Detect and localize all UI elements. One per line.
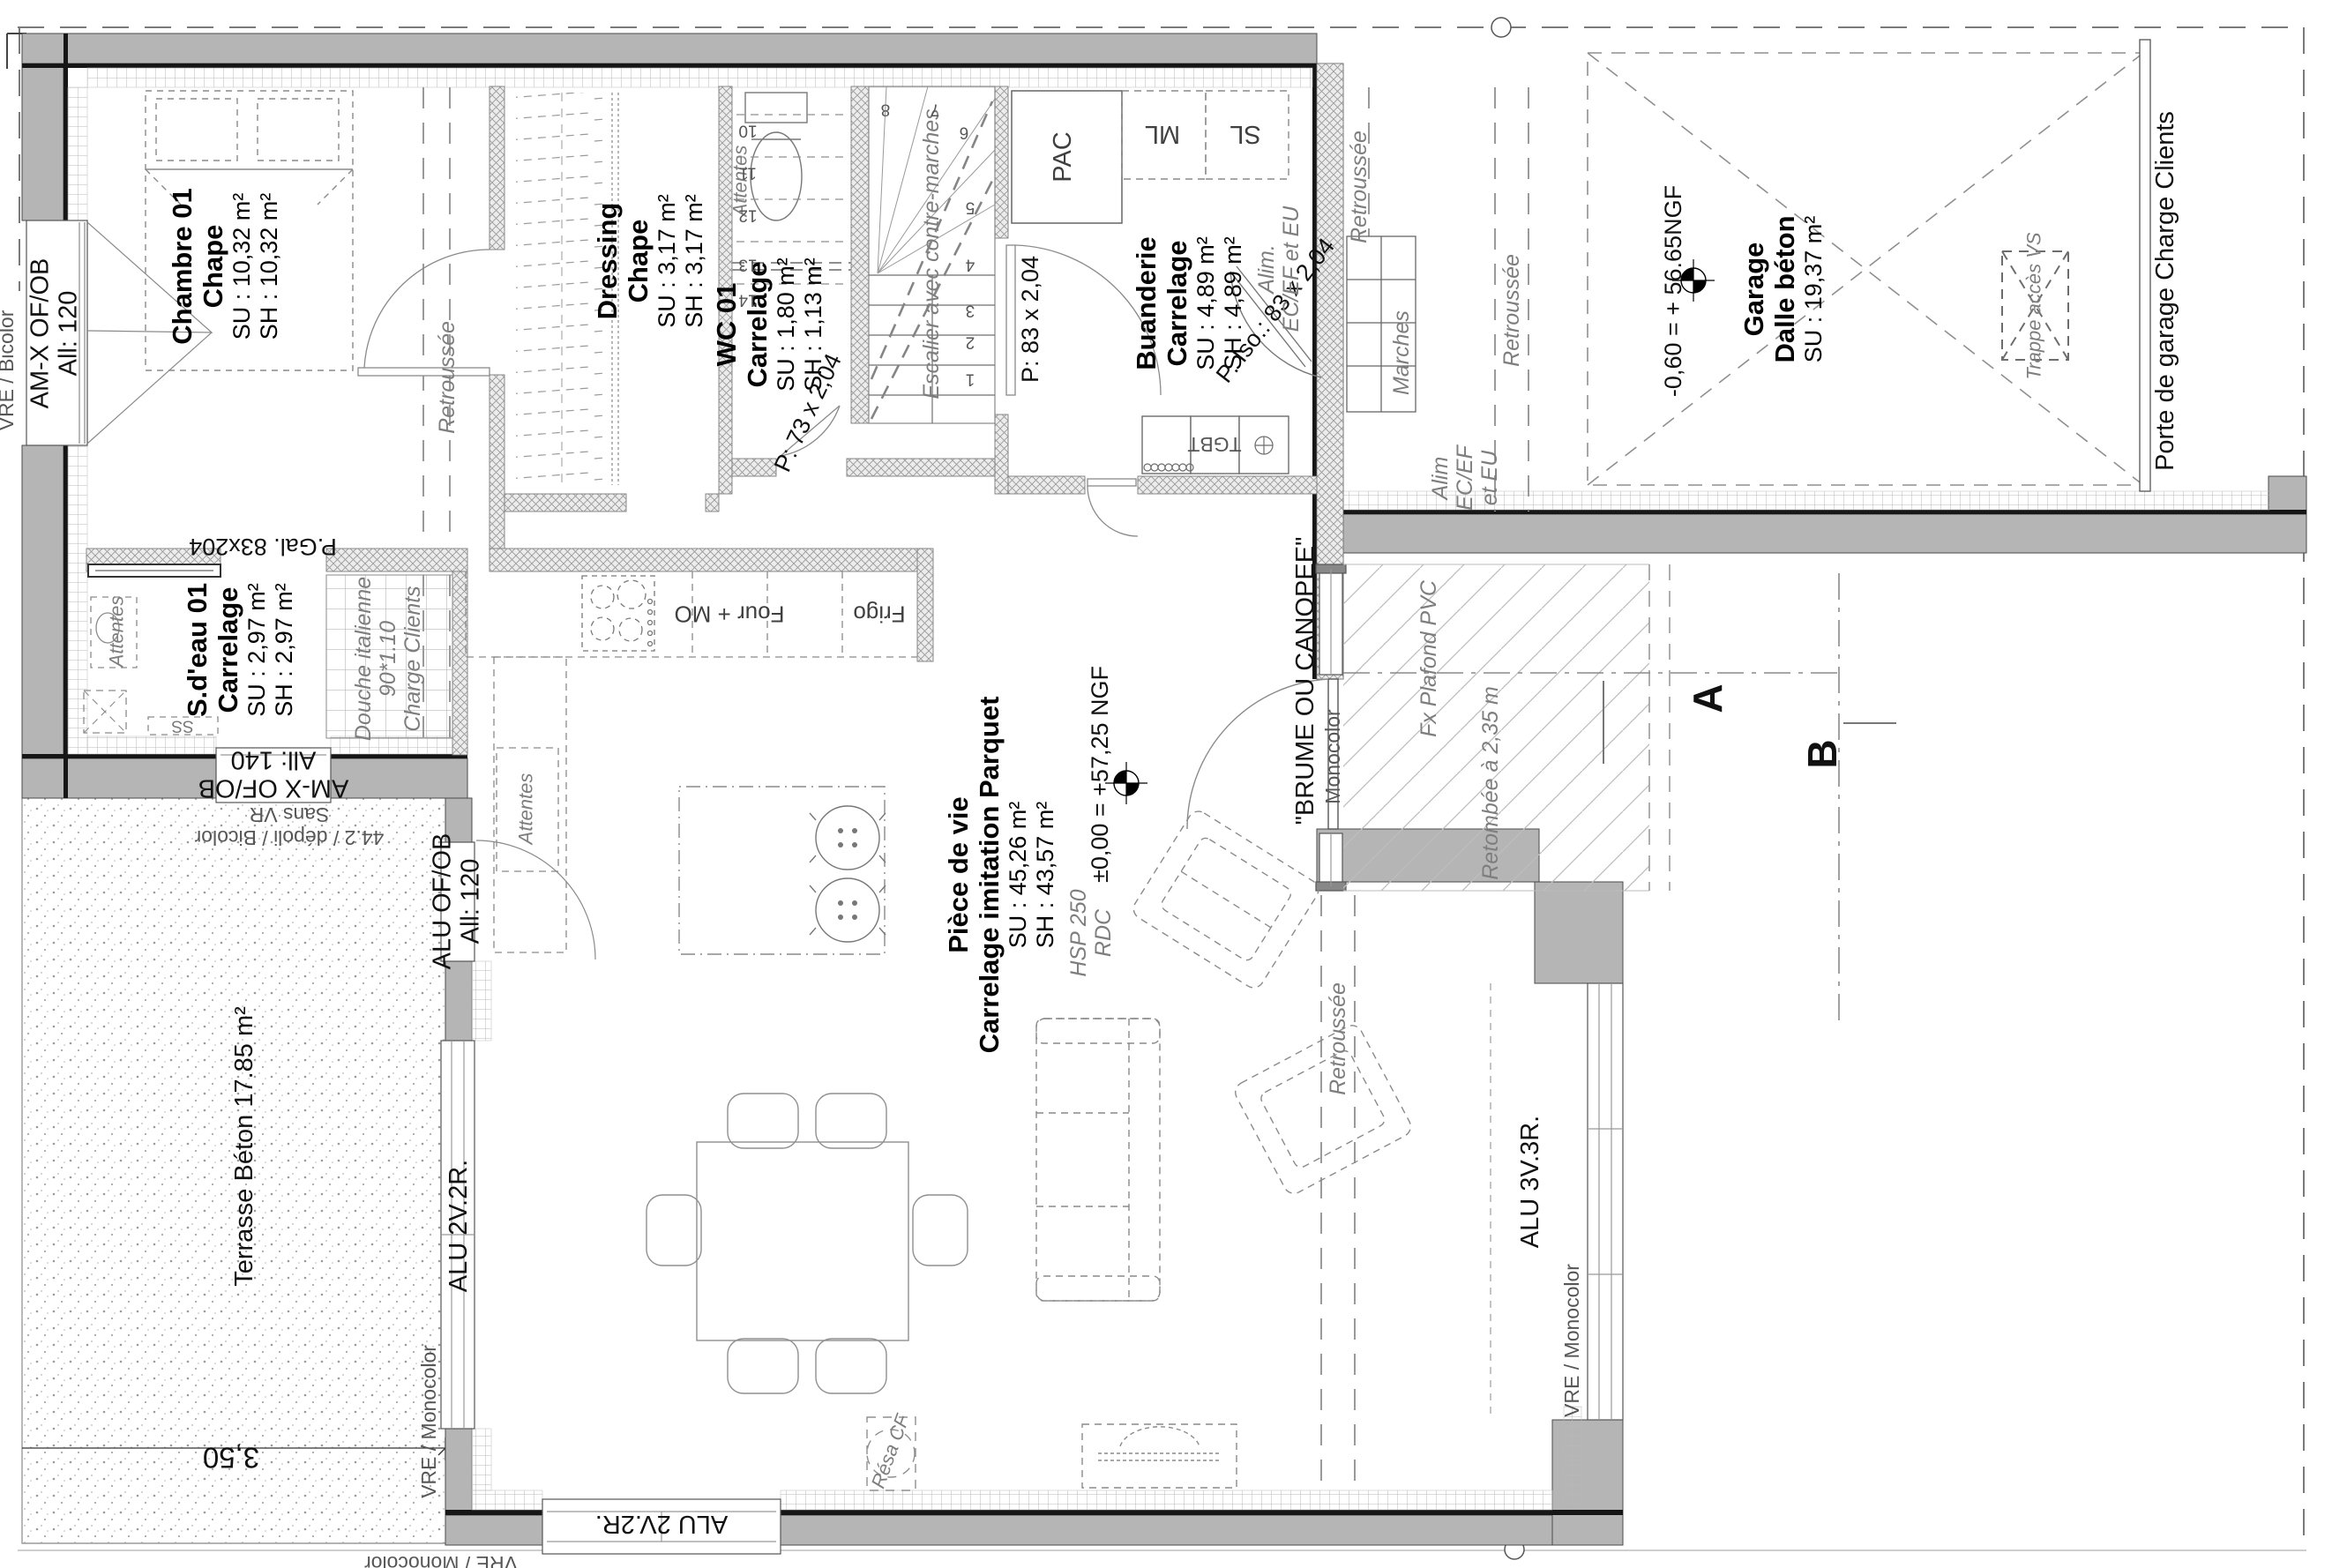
door-pgal-text: P.Gal. 83x204 (189, 534, 337, 560)
note-retombee-text: Retombée à 2,35 m (1478, 686, 1503, 880)
room-terrasse: Terrasse Béton 17.85 m² (230, 1006, 258, 1287)
room-chambre-01-subtext: SU : 10,32 m² (228, 188, 255, 344)
room-piece-de-vie-subtext: SH : 43,57 m² (1032, 697, 1058, 1054)
dim-3-50-text: 3,50 (203, 1441, 259, 1474)
glazing-spec-text: Sans VR (195, 803, 385, 825)
note-retroussee-2-text: Retroussée (1347, 131, 1372, 243)
room-chambre-01-text: Chambre 01 (168, 188, 198, 344)
room-chambre-01-text: Chape (198, 188, 229, 344)
stair-2: 2 (966, 332, 975, 351)
room-dressing-text: Chape (624, 194, 654, 328)
window-alu-2v2r-south: ALU 2V.2R. (595, 1510, 728, 1538)
room-piece-de-vie-text: Carrelage imitation Parquet (975, 697, 1005, 1054)
window-vre-bicolor: VRE / Bicolor (0, 310, 19, 431)
note-hsp-text: RDC (1091, 889, 1116, 976)
note-attentes-sdeau-text: Attentes (107, 596, 129, 668)
note-hsp: HSP 250RDC (1066, 889, 1116, 976)
section-b-text: B (1800, 739, 1846, 768)
room-dressing-subtext: SH : 3,17 m² (681, 194, 707, 328)
stair-11: 11 (739, 163, 757, 182)
note-retroussee-3: Retroussée (1499, 254, 1524, 367)
stair-11-text: 11 (739, 163, 757, 182)
level-rdc-text: ±0,00 = +57,25 NGF (1087, 666, 1113, 883)
window-alu-3v3r-text: ALU 3V.3R. (1516, 1116, 1544, 1248)
note-alim-2: AlimEC/EFet EU (1428, 445, 1502, 511)
note-alim-2-text: EC/EF (1453, 445, 1477, 511)
note-trappe-vs-text: Trappe accès VS (2024, 232, 2046, 379)
stair-10-text: 10 (738, 121, 757, 139)
room-buanderie-text: Buanderie (1132, 236, 1162, 370)
garage-door-label-text: Porte de garage Charge Clients (2151, 111, 2179, 471)
window-amx-140-text: All: 140 (198, 745, 349, 773)
note-douche-text: Charge Clients (400, 577, 425, 741)
equip-sl: SL (1230, 120, 1260, 148)
stair-7-text: 7 (931, 100, 940, 118)
room-terrasse-text: Terrasse Béton 17.85 m² (230, 1006, 258, 1287)
stair-4-text: 4 (966, 255, 975, 273)
room-dressing-text: Dressing (593, 194, 624, 328)
equip-pac: PAC (1049, 131, 1077, 182)
note-resa-cf: Résa CF (868, 1412, 915, 1491)
note-attentes-cuisine-text: Attentes (516, 773, 538, 845)
stair-14: 14 (738, 290, 757, 309)
equip-tgbt-text: TGBT (1187, 432, 1241, 455)
section-a-text: A (1685, 683, 1731, 713)
door-p83-text: P: 83 x 2,04 (1017, 256, 1043, 383)
floor-plan: Chambre 01ChapeSU : 10,32 m²SH : 10,32 m… (0, 0, 2332, 1568)
room-garage-subtext: SU : 19,37 m² (1801, 215, 1827, 362)
note-hsp-text: HSP 250 (1066, 889, 1091, 976)
window-alu-2v2r-west-text: ALU 2V.2R. (445, 1160, 473, 1292)
plan-labels: Chambre 01ChapeSU : 10,32 m²SH : 10,32 m… (0, 0, 2332, 1568)
room-chambre-01-subtext: SH : 10,32 m² (256, 188, 282, 344)
room-piece-de-vie: Pièce de vieCarrelage imitation ParquetS… (944, 697, 1058, 1054)
door-pgal: P.Gal. 83x204 (189, 534, 337, 560)
equip-four-mo: Four + MO (675, 601, 785, 626)
note-monocolor: Monocolor (1322, 709, 1345, 803)
window-alu-ofob-120-text: All: 120 (457, 833, 485, 970)
equip-ml-text: ML (1145, 120, 1180, 148)
equip-ml: ML (1145, 120, 1180, 148)
note-attentes-cuisine: Attentes (516, 773, 538, 845)
stair-8-text: 8 (881, 100, 891, 118)
window-alu-ofob-120-text: ALU OF/OB (429, 833, 457, 970)
door-p83: P: 83 x 2,04 (1017, 256, 1043, 383)
note-retroussee-4: Retroussée (1326, 982, 1350, 1095)
room-buanderie-text: Carrelage (1162, 236, 1193, 370)
room-garage: GarageDalle bétonSU : 19,37 m² (1739, 215, 1827, 362)
note-douche: Douche italienne90*1.10Charge Clients (351, 577, 425, 741)
glazing-spec: 44.2 / dépoli / BicolorSans VR (195, 803, 385, 848)
equip-sl-text: SL (1230, 120, 1260, 148)
level-garage: -0,60 = + 56.65NGF (1660, 185, 1686, 397)
note-retroussee-1: Retroussée (435, 321, 460, 434)
window-amx-120-text: AM-X OF/OB (26, 258, 55, 409)
room-wc-01-text: Carrelage (743, 258, 774, 392)
window-vre-monocolor-east: VRE / Monocolor (1561, 1264, 1584, 1417)
room-dressing-subtext: SU : 3,17 m² (654, 194, 680, 328)
note-marches-text: Marches (1389, 310, 1414, 395)
note-brume-canopee-text: "BRUME OU CANOPEE" (1291, 537, 1319, 825)
stair-8: 8 (881, 100, 891, 118)
stair-4: 4 (966, 255, 975, 273)
note-douche-text: 90*1.10 (376, 577, 400, 741)
note-escalier-text: Escalier avec contre-marches (919, 108, 944, 399)
room-piece-de-vie-subtext: SU : 45,26 m² (1005, 697, 1031, 1054)
note-alim-1-text: Alim. (1254, 206, 1279, 332)
window-amx-140-text: AM-X OF/OB (198, 773, 349, 802)
window-alu-ofob-120: ALU OF/OBAll: 120 (429, 833, 486, 970)
note-retroussee-2: Retroussée (1347, 131, 1372, 243)
window-vre-monocolor-south-text: VRE / Monocolor (364, 1551, 518, 1568)
stair-12-text: 12 (738, 205, 757, 224)
section-b: B (1800, 739, 1846, 768)
window-alu-3v3r: ALU 3V.3R. (1516, 1116, 1544, 1248)
room-garage-text: Garage (1739, 215, 1770, 362)
note-trappe-vs: Trappe accès VS (2024, 232, 2046, 379)
note-alim-2-text: et EU (1477, 445, 1502, 511)
stair-3-text: 3 (966, 301, 975, 319)
note-retroussee-1-text: Retroussée (435, 321, 460, 434)
stair-6-text: 6 (960, 123, 969, 141)
stair-10: 10 (738, 121, 757, 139)
note-brume-canopee: "BRUME OU CANOPEE" (1291, 537, 1319, 825)
window-vre-monocolor-west: VRE / Monocolor (418, 1345, 441, 1498)
room-wc-01-subtext: SU : 1,80 m² (773, 258, 799, 392)
window-vre-monocolor-east-text: VRE / Monocolor (1561, 1264, 1584, 1417)
note-alim-1: Alim.EC/EF et EU (1254, 206, 1304, 332)
stair-2-text: 2 (966, 332, 975, 351)
note-monocolor-text: Monocolor (1322, 709, 1345, 803)
section-a: A (1685, 683, 1731, 713)
equip-pac-text: PAC (1049, 131, 1077, 182)
note-attentes-sdeau: Attentes (107, 596, 129, 668)
note-fx-plafond: Fx Plafond PVC (1416, 580, 1441, 737)
glazing-spec-text: 44.2 / dépoli / Bicolor (195, 825, 385, 848)
stair-3: 3 (966, 301, 975, 319)
room-dressing: DressingChapeSU : 3,17 m²SH : 3,17 m² (593, 194, 707, 328)
stair-5-text: 5 (966, 198, 975, 216)
note-retroussee-4-text: Retroussée (1326, 982, 1350, 1095)
garage-door-label: Porte de garage Charge Clients (2151, 111, 2179, 471)
note-ss: SS (171, 716, 193, 735)
window-alu-2v2r-south-text: ALU 2V.2R. (595, 1510, 728, 1538)
stair-7: 7 (931, 100, 940, 118)
level-rdc: ±0,00 = +57,25 NGF (1087, 666, 1113, 883)
note-fx-plafond-text: Fx Plafond PVC (1416, 580, 1441, 737)
window-amx-120: AM-X OF/OBAll: 120 (26, 258, 84, 409)
room-wc-01: WC 01CarrelageSU : 1,80 m²SH : 1,13 m² (712, 258, 826, 392)
window-vre-bicolor-text: VRE / Bicolor (0, 310, 19, 431)
stair-12: 12 (738, 205, 757, 224)
room-sdeau-01-subtext: SH : 2,97 m² (271, 583, 297, 717)
room-sdeau-01: S.d'eau 01CarrelageSU : 2,97 m²SH : 2,97… (183, 583, 297, 717)
note-resa-cf-text: Résa CF (868, 1412, 915, 1491)
stair-14-text: 14 (738, 290, 757, 309)
room-chambre-01: Chambre 01ChapeSU : 10,32 m²SH : 10,32 m… (168, 188, 282, 344)
note-alim-2-text: Alim (1428, 445, 1453, 511)
equip-four-mo-text: Four + MO (675, 601, 785, 626)
stair-1: 1 (966, 370, 975, 388)
note-escalier: Escalier avec contre-marches (919, 108, 944, 399)
level-garage-text: -0,60 = + 56.65NGF (1660, 185, 1686, 397)
equip-frigo: Frigo (853, 601, 905, 626)
window-vre-monocolor-west-text: VRE / Monocolor (418, 1345, 441, 1498)
note-retombee: Retombée à 2,35 m (1478, 686, 1503, 880)
stair-6: 6 (960, 123, 969, 141)
stair-5: 5 (966, 198, 975, 216)
note-alim-1-text: EC/EF et EU (1279, 206, 1304, 332)
room-sdeau-01-text: Carrelage (213, 583, 244, 717)
note-retroussee-3-text: Retroussée (1499, 254, 1524, 367)
room-buanderie-subtext: SU : 4,89 m² (1192, 236, 1219, 370)
room-piece-de-vie-text: Pièce de vie (944, 697, 975, 1054)
stair-13: 13 (738, 255, 757, 273)
note-ss-text: SS (171, 716, 193, 735)
room-sdeau-01-text: S.d'eau 01 (183, 583, 213, 717)
equip-tgbt: TGBT (1187, 432, 1241, 455)
note-marches: Marches (1389, 310, 1414, 395)
dim-3-50: 3,50 (203, 1441, 259, 1474)
stair-13-text: 13 (738, 255, 757, 273)
stair-1-text: 1 (966, 370, 975, 388)
room-sdeau-01-subtext: SU : 2,97 m² (243, 583, 270, 717)
window-amx-120-text: All: 120 (55, 258, 83, 409)
note-douche-text: Douche italienne (351, 577, 376, 741)
room-wc-01-text: WC 01 (712, 258, 743, 392)
window-amx-140: AM-X OF/OBAll: 140 (198, 745, 349, 803)
room-garage-text: Dalle béton (1770, 215, 1801, 362)
equip-frigo-text: Frigo (853, 601, 905, 626)
window-vre-monocolor-south: VRE / Monocolor (364, 1551, 518, 1568)
window-alu-2v2r-west: ALU 2V.2R. (445, 1160, 473, 1292)
